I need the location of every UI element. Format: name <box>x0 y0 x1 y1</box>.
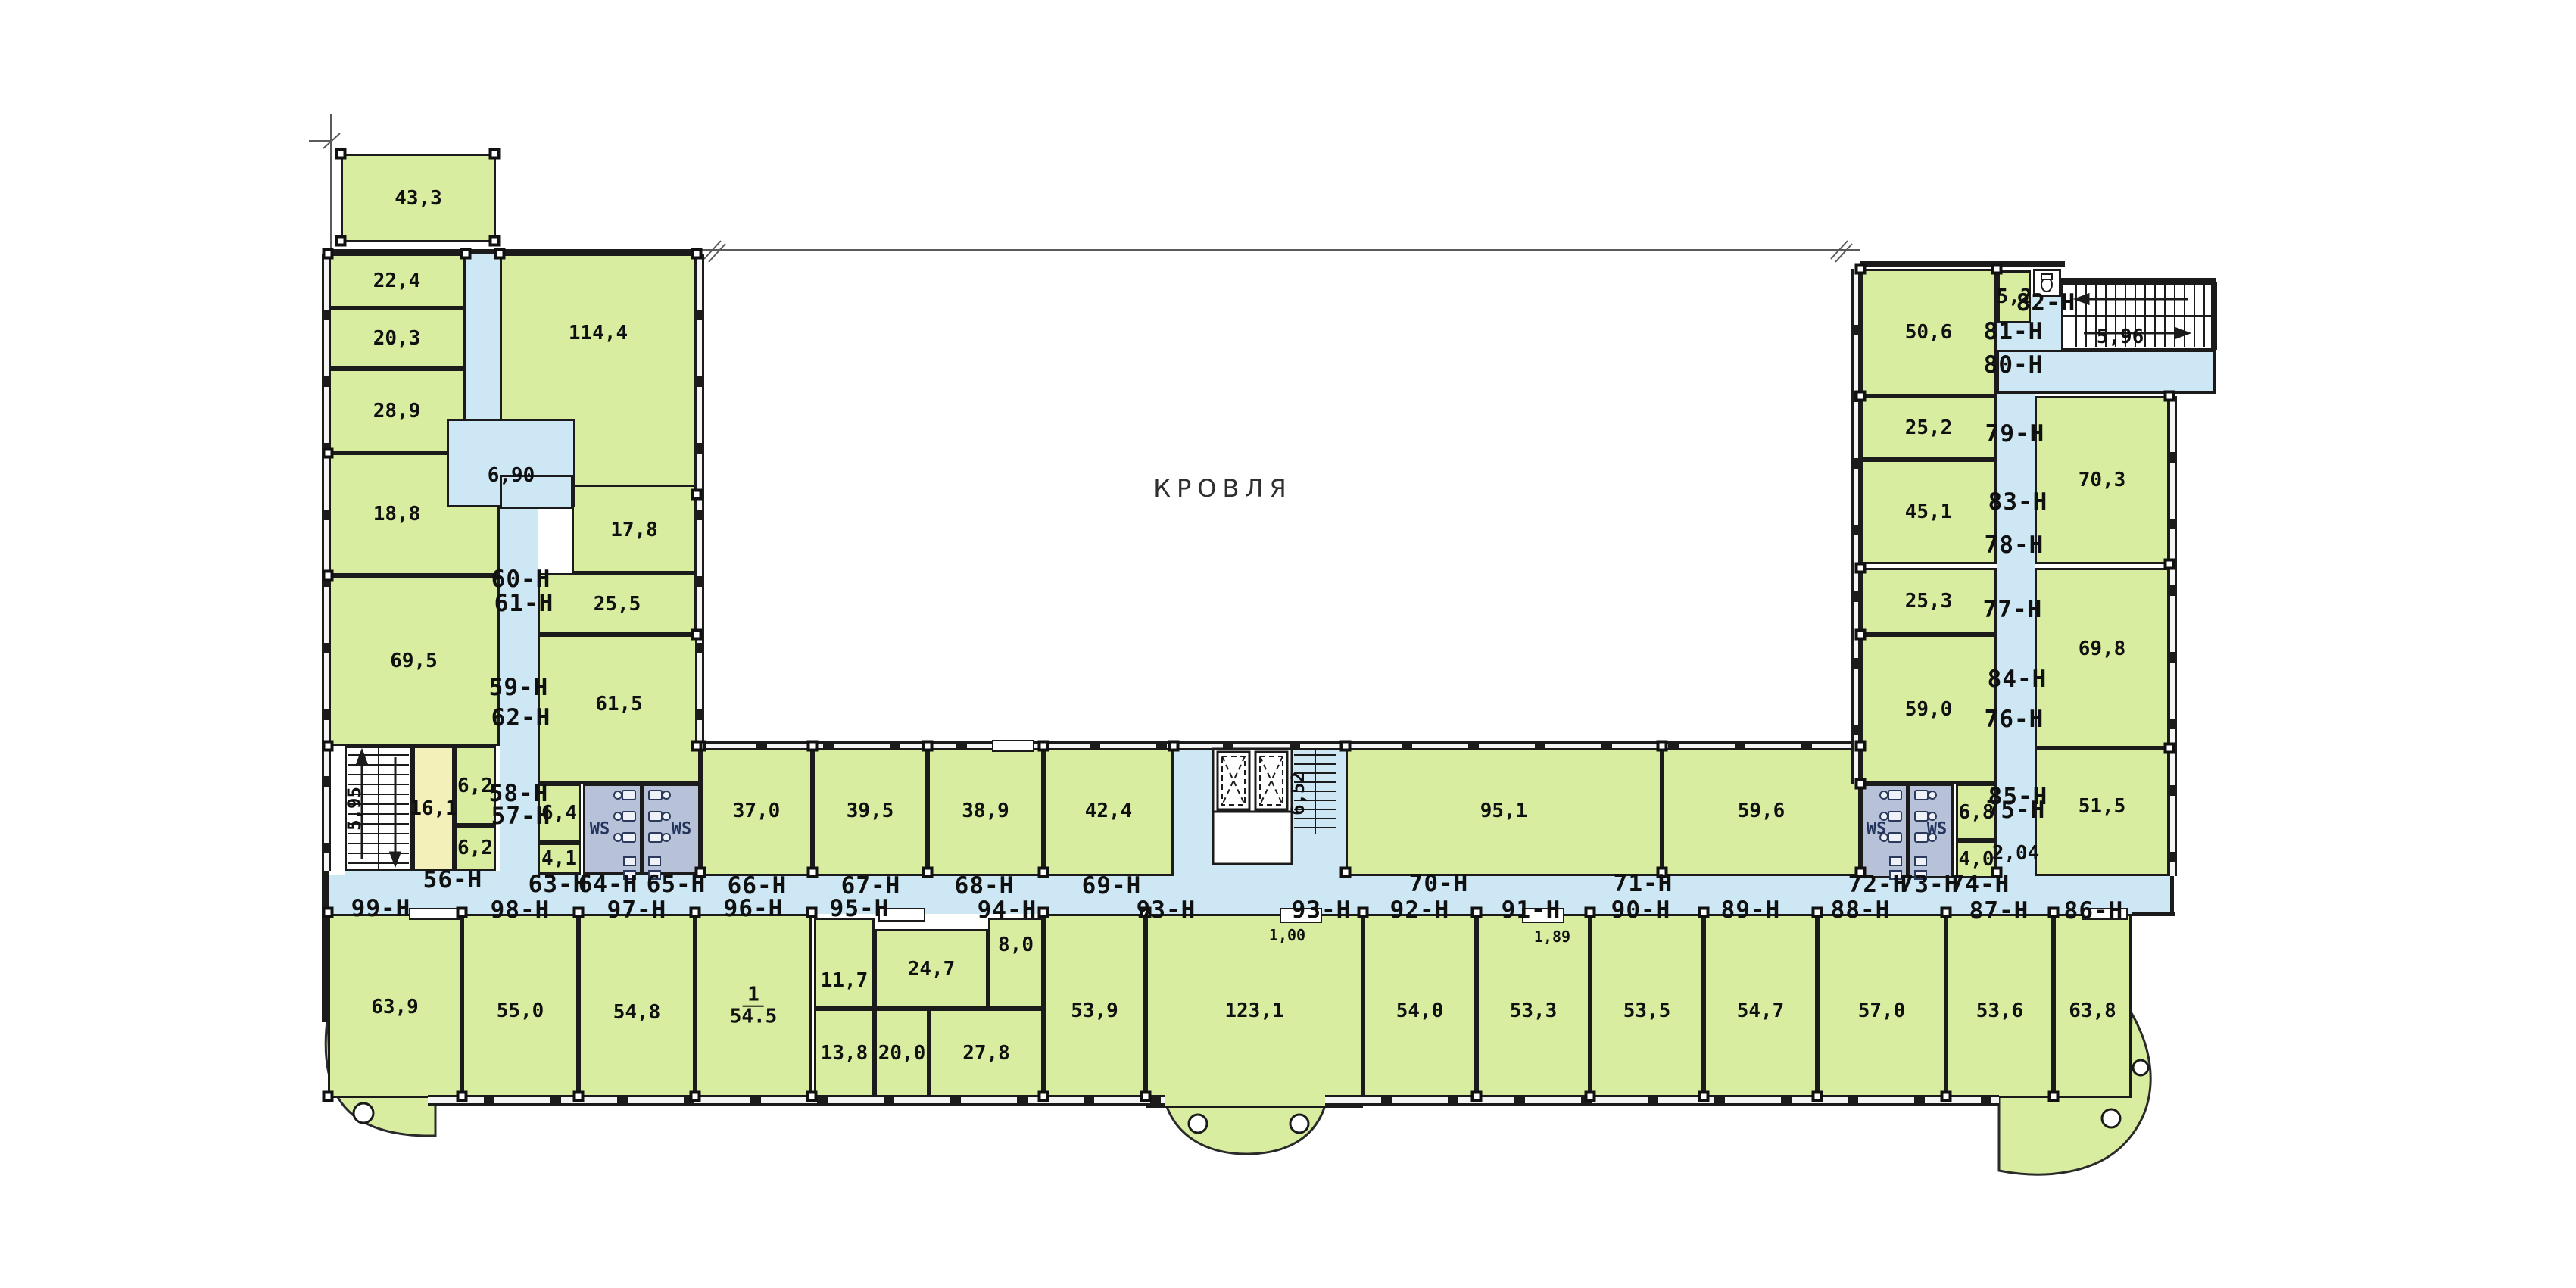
column-marker <box>323 741 334 752</box>
column-marker <box>1855 391 1867 402</box>
room-area-label: 61,5 <box>595 693 643 716</box>
sink-icon <box>1915 857 1926 865</box>
arrow-head-up-icon <box>357 751 366 763</box>
column-marker <box>1698 907 1710 918</box>
toilet-icon <box>649 812 662 821</box>
column-marker <box>1471 1091 1483 1102</box>
unit-number-label: 80-Н <box>1984 351 2044 379</box>
unit-number-label: 79-Н <box>1985 420 2045 448</box>
column-marker <box>494 248 506 260</box>
column-marker <box>1038 867 1049 878</box>
toilet-icon <box>1915 791 1928 800</box>
column-marker <box>489 235 501 247</box>
column-marker <box>1698 1091 1710 1102</box>
room-area-denominator: 54.5 <box>730 1007 778 1028</box>
toilet-icon <box>614 834 622 841</box>
column-marker <box>691 248 703 260</box>
column-marker <box>335 235 347 247</box>
toilet-icon <box>622 791 635 800</box>
door-width-label: 1,00 <box>1269 926 1305 944</box>
corridor-area-label: 5,96 <box>2097 326 2144 348</box>
column-marker <box>691 489 703 501</box>
toilet-icon <box>663 812 670 820</box>
unit-number-label: 83-Н <box>1988 488 2048 516</box>
unit-number-label: 57-Н <box>491 803 551 830</box>
room-area-label: 25,5 <box>594 593 641 616</box>
stair-width-label: 5,95 <box>344 787 365 831</box>
door-opening <box>992 740 1034 752</box>
unit-number-label: 78-Н <box>1985 532 2044 559</box>
room-area-label: 13,8 <box>821 1042 869 1065</box>
room-area-label: 95,1 <box>1480 800 1528 822</box>
room-area-label: 43,3 <box>395 187 442 210</box>
column-marker <box>922 741 934 752</box>
toilet-icon <box>1880 812 1888 820</box>
column-marker <box>1038 741 1049 752</box>
corridor-area-label: 2,04 <box>1992 842 2040 865</box>
sink-icon <box>624 857 635 865</box>
ws-room-label: WS <box>1867 820 1887 839</box>
roof-title: КРОВЛЯ <box>1153 474 1292 503</box>
column-marker <box>1855 778 1867 790</box>
unit-number-label: 72-Н <box>1848 871 1908 898</box>
unit-number-label: 98-Н <box>491 897 550 924</box>
toilet-icon <box>663 791 670 799</box>
room-area-label: 54,8 <box>613 1001 661 1024</box>
column-marker <box>2048 907 2060 918</box>
column-marker <box>323 248 334 260</box>
room-area-label: 54,0 <box>1396 1000 1444 1022</box>
toilet-icon <box>2041 274 2052 279</box>
room-area-label: 16,1 <box>410 797 457 820</box>
column-marker <box>489 148 501 160</box>
unit-number-label: 95-Н <box>830 895 890 922</box>
door-opening <box>409 908 462 920</box>
column-marker <box>2164 391 2175 402</box>
column-marker <box>457 907 468 918</box>
room-area-label: 54,7 <box>1737 1000 1785 1022</box>
column-marker <box>323 448 334 459</box>
column-marker <box>1340 867 1352 878</box>
column-marker <box>335 148 347 160</box>
room-area-label: 57,0 <box>1858 1000 1906 1022</box>
unit-number-label: 56-Н <box>423 866 483 893</box>
toilet-icon <box>1929 812 1936 820</box>
unit-number-label: 77-Н <box>1983 596 2043 623</box>
column-marker <box>806 1091 818 1102</box>
column-marker <box>573 907 585 918</box>
column-marker <box>1585 907 1596 918</box>
room-area-label: 8,0 <box>998 934 1034 956</box>
column-marker <box>690 907 701 918</box>
unit-number-label: 64-Н <box>579 871 638 898</box>
room-area-label: 42,4 <box>1085 800 1133 822</box>
column-marker <box>460 248 472 260</box>
room-area-label: 69,5 <box>390 650 438 672</box>
unit-number-label: 74-Н <box>1951 871 2010 898</box>
column-marker <box>922 867 934 878</box>
toilet-icon <box>1929 791 1936 799</box>
column-marker <box>1941 907 1952 918</box>
unit-number-label: 65-Н <box>647 871 706 898</box>
column-marker <box>323 907 334 918</box>
stairs-elevators-fixtures-layer <box>0 0 2576 1288</box>
toilet-icon <box>1915 812 1928 821</box>
room-area-label: 53,6 <box>1976 1000 2024 1022</box>
unit-number-label: 93-Н <box>1292 897 1352 924</box>
unit-number-label: 97-Н <box>607 897 667 924</box>
column-marker <box>323 570 334 582</box>
column-marker <box>1855 264 1867 275</box>
unit-number-label: 70-Н <box>1409 870 1469 897</box>
column-marker <box>691 629 703 641</box>
room-area-label: 28,9 <box>373 400 421 423</box>
unit-number-label: 96-Н <box>724 895 784 922</box>
unit-number-label: 82-Н <box>2016 289 2076 317</box>
column-marker <box>1585 1091 1596 1102</box>
column-marker <box>807 741 819 752</box>
arrow-head-left-icon <box>2076 295 2088 304</box>
toilet-icon <box>1915 833 1928 842</box>
room-area-label: 63,9 <box>371 996 419 1018</box>
room-area-label: 37,0 <box>733 800 781 822</box>
column-marker <box>1855 741 1867 752</box>
toilet-icon <box>614 812 622 820</box>
room-area-label: 27,8 <box>962 1042 1010 1065</box>
column-marker <box>1855 629 1867 641</box>
column-marker <box>1991 264 2003 275</box>
column-marker <box>1471 907 1483 918</box>
column-marker <box>1140 1091 1152 1102</box>
unit-number-label: 86-Н <box>2064 897 2124 925</box>
room-area-label: 22,4 <box>373 270 421 292</box>
room-area-label: 53,5 <box>1623 1000 1671 1022</box>
room-area-label: 59,6 <box>1738 800 1785 822</box>
column-marker <box>1812 907 1823 918</box>
room-area-label: 11,7 <box>821 969 869 992</box>
column-marker <box>1168 741 1180 752</box>
room-area-label: 55,0 <box>497 1000 544 1022</box>
room-area-label: 24,7 <box>908 958 956 981</box>
room-area-label: 4,0 <box>1959 848 1994 871</box>
unit-number-label: 93-Н <box>1137 897 1196 924</box>
unit-number-label: 90-Н <box>1611 897 1671 924</box>
unit-number-label: 68-Н <box>955 872 1015 900</box>
column-marker <box>806 907 818 918</box>
ws-room-label: WS <box>590 820 610 839</box>
room-area-label: 154.5 <box>730 984 778 1028</box>
toilet-icon <box>649 791 662 800</box>
ws-room-label: WS <box>1927 820 1948 839</box>
room-area-label: 6,2 <box>457 837 493 859</box>
room-area-label: 114,4 <box>569 322 628 345</box>
column-marker <box>807 867 819 878</box>
column-marker <box>2164 743 2175 754</box>
column-marker <box>1340 741 1352 752</box>
toilet-icon <box>622 812 635 821</box>
stair-width-label: 6,52 <box>1287 772 1308 816</box>
room-area-label: 123,1 <box>1224 1000 1283 1022</box>
unit-number-label: 94-Н <box>978 897 1037 924</box>
door-width-label: 1,89 <box>1534 928 1570 946</box>
unit-number-label: 60-Н <box>491 566 551 593</box>
ws-room-label: WS <box>672 820 692 839</box>
room-area-label: 6,2 <box>457 775 493 797</box>
toilet-icon <box>649 833 662 842</box>
column-marker <box>1657 741 1668 752</box>
room-area-label: 20,3 <box>373 327 421 350</box>
column-marker <box>691 741 703 752</box>
unit-number-label: 87-Н <box>1969 897 2029 925</box>
column-marker <box>2164 559 2175 570</box>
room-area-label: 69,8 <box>2079 638 2126 660</box>
floor-plan: КРОВЛЯ 43,322,420,328,918,869,5114,417,8… <box>0 0 2576 1288</box>
room-area-label: 53,3 <box>1510 1000 1558 1022</box>
room-area-label: 20,0 <box>878 1042 926 1065</box>
room-area-label: 50,6 <box>1905 321 1953 344</box>
toilet-icon <box>1888 812 1901 821</box>
unit-number-label: 61-Н <box>494 590 554 617</box>
unit-number-label: 76-Н <box>1985 706 2044 733</box>
unit-number-label: 62-Н <box>491 704 551 731</box>
toilet-icon <box>622 833 635 842</box>
column-marker <box>1358 907 1369 918</box>
unit-number-label: 99-Н <box>351 895 411 922</box>
room-area-label: 53,9 <box>1071 1000 1118 1022</box>
toilet-icon <box>1880 791 1888 799</box>
toilet-icon <box>1888 833 1901 842</box>
unit-number-label: 92-Н <box>1390 897 1450 924</box>
unit-number-label: 81-Н <box>1984 318 2044 345</box>
sink-icon <box>1890 857 1901 865</box>
room-area-label: 25,3 <box>1905 590 1953 613</box>
unit-number-label: 69-Н <box>1082 872 1142 900</box>
room-area-label: 59,0 <box>1905 698 1953 721</box>
column-marker <box>2048 1091 2060 1102</box>
elevator-core <box>1213 749 1292 864</box>
room-area-numerator: 1 <box>743 984 764 1006</box>
room-area-label: 70,3 <box>2079 469 2126 491</box>
column-marker <box>457 1091 468 1102</box>
unit-number-label: 71-Н <box>1614 870 1673 897</box>
room-area-label: 51,5 <box>2079 795 2126 818</box>
room-area-label: 39,5 <box>847 800 894 822</box>
unit-number-label: 91-Н <box>1502 897 1561 924</box>
room-area-label: 25,2 <box>1905 416 1953 439</box>
unit-number-label: 88-Н <box>1831 897 1891 924</box>
column-marker <box>1038 907 1049 918</box>
column-marker <box>1855 563 1867 574</box>
arrow-head-right-icon <box>2176 329 2188 338</box>
corridor-area-label: 6,90 <box>488 464 535 487</box>
unit-number-label: 89-Н <box>1721 897 1781 924</box>
toilet-icon <box>663 834 670 841</box>
unit-number-label: 75-Н <box>1986 797 2046 824</box>
room-area-label: 4,1 <box>541 847 577 870</box>
toilet-icon <box>1888 791 1901 800</box>
sink-icon <box>649 857 660 865</box>
column-marker <box>1941 1091 1952 1102</box>
column-marker <box>690 1091 701 1102</box>
room-area-label: 18,8 <box>373 503 421 525</box>
unit-number-label: 84-Н <box>1988 666 2047 693</box>
room-area-label: 63,8 <box>2069 1000 2116 1022</box>
toilet-icon <box>614 791 622 799</box>
column-marker <box>573 1091 585 1102</box>
column-marker <box>1812 1091 1823 1102</box>
room-area-label: 17,8 <box>610 519 658 541</box>
room-area-label: 45,1 <box>1905 501 1953 523</box>
room-area-label: 38,9 <box>962 800 1009 822</box>
column-marker <box>1038 1091 1049 1102</box>
unit-number-label: 59-Н <box>489 674 549 701</box>
column-marker <box>323 1091 334 1102</box>
